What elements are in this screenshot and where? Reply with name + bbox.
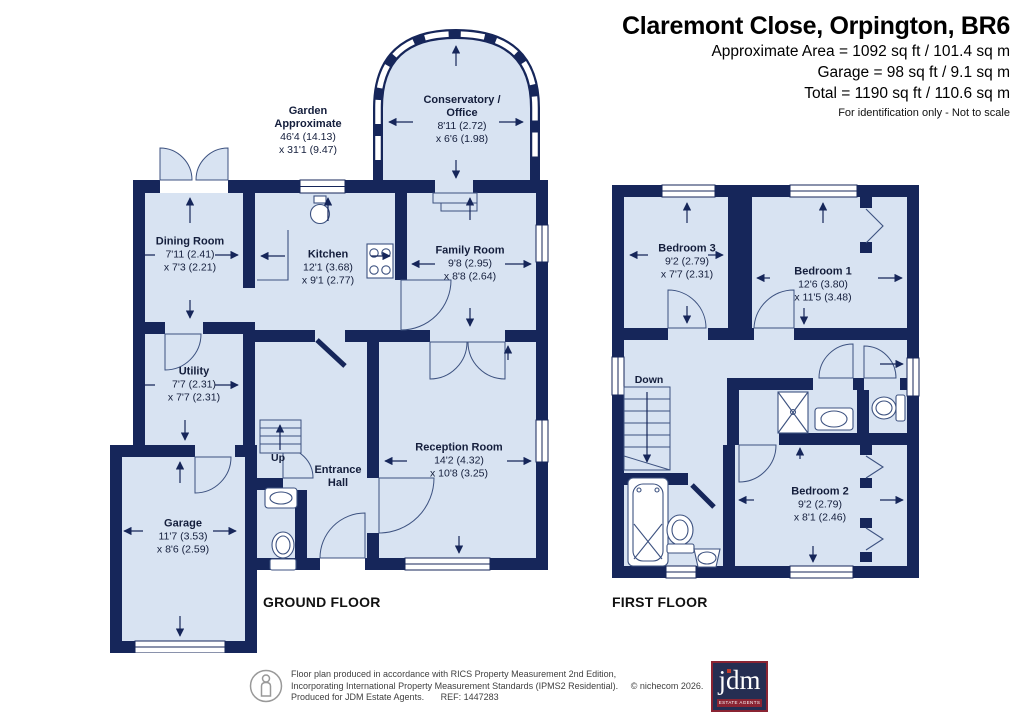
total-area: Total = 1190 sq ft / 110.6 sq m xyxy=(622,83,1010,104)
jdm-logo-text: jdm xyxy=(713,665,766,695)
person-icon xyxy=(249,669,283,703)
room-label-utility: Utility 7'7 (2.31) x 7'7 (2.31) xyxy=(168,366,220,405)
jdm-logo: jdm ESTATE AGENTS xyxy=(711,661,768,712)
first-floor-caption: FIRST FLOOR xyxy=(612,594,708,610)
footer-ref: REF: 1447283 xyxy=(441,692,499,702)
stairs-down xyxy=(624,387,670,470)
stove-icon xyxy=(367,244,393,278)
footer-line1: Floor plan produced in accordance with R… xyxy=(291,669,616,679)
jdm-logo-subtext: ESTATE AGENTS xyxy=(717,699,762,707)
room-label-hall: Entrance Hall xyxy=(314,464,361,490)
stairs-up xyxy=(260,420,301,453)
room-label-bedroom3: Bedroom 3 9'2 (2.79) x 7'7 (2.31) xyxy=(658,243,715,282)
wc-toilet-icon xyxy=(872,395,905,421)
header: Claremont Close, Orpington, BR6 Approxim… xyxy=(622,12,1010,119)
garage-area: Garage = 98 sq ft / 9.1 sq m xyxy=(622,62,1010,83)
shower-icon xyxy=(778,392,808,433)
room-label-garage: Garage 11'7 (3.53) x 8'6 (2.59) xyxy=(157,518,209,557)
room-label-bedroom1: Bedroom 1 12'6 (3.80) x 11'5 (3.48) xyxy=(794,266,851,305)
stairs-up-label: Up xyxy=(271,452,285,464)
footer-line3: Produced for JDM Estate Agents. xyxy=(291,692,424,702)
bathroom-basin-icon xyxy=(694,549,720,567)
french-door-left xyxy=(160,148,192,180)
room-label-conservatory: Conservatory / Office 8'11 (2.72) x 6'6 … xyxy=(423,94,500,146)
stairs-down-label: Down xyxy=(635,374,664,386)
bathroom-toilet-icon xyxy=(667,515,694,553)
room-label-family: Family Room 9'8 (2.95) x 8'8 (2.64) xyxy=(435,245,504,284)
disclaimer-note: For identification only - Not to scale xyxy=(622,107,1010,119)
footer-copyright: © nichecom 2026. xyxy=(631,681,704,691)
shower-room-basin-icon xyxy=(815,408,853,430)
french-door-right xyxy=(196,148,228,180)
wc-basin-icon xyxy=(265,488,297,508)
bath-icon xyxy=(628,478,668,566)
ground-floor-caption: GROUND FLOOR xyxy=(263,594,381,610)
room-label-garden: Garden Approximate 46'4 (14.13) x 31'1 (… xyxy=(274,105,341,157)
room-label-kitchen: Kitchen 12'1 (3.68) x 9'1 (2.77) xyxy=(302,249,354,288)
page-title: Claremont Close, Orpington, BR6 xyxy=(622,12,1010,41)
room-label-reception: Reception Room 14'2 (4.32) x 10'8 (3.25) xyxy=(415,442,502,481)
footer-text: Floor plan produced in accordance with R… xyxy=(291,669,761,704)
approximate-area: Approximate Area = 1092 sq ft / 101.4 sq… xyxy=(622,41,1010,62)
wc-toilet-icon xyxy=(270,532,296,570)
jdm-logo-dot xyxy=(727,669,731,673)
room-label-bedroom2: Bedroom 2 9'2 (2.79) x 8'1 (2.46) xyxy=(791,486,848,525)
floorplan-page: { "header": { "title": "Claremont Close,… xyxy=(0,0,1020,721)
room-label-dining: Dining Room 7'11 (2.41) x 7'3 (2.21) xyxy=(156,236,224,275)
footer-line2: Incorporating International Property Mea… xyxy=(291,681,618,691)
